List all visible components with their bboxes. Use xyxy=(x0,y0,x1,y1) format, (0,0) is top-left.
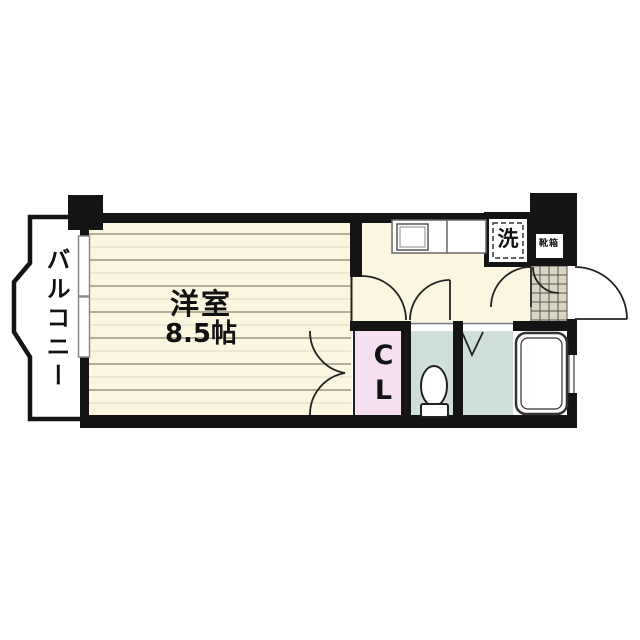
wall-above-bath xyxy=(513,321,567,331)
wall-right-upper xyxy=(567,223,577,266)
shoebox-label: 靴箱 xyxy=(535,240,563,249)
entrance-door-arc xyxy=(575,267,627,319)
wall-right-lower xyxy=(567,393,577,415)
floor-plan-page: バルコニー 洋室 8.5帖 CL 洗 靴箱 xyxy=(0,0,640,640)
floor-plan-drawing xyxy=(0,0,640,640)
room-name-label: 洋室 xyxy=(101,289,301,319)
entry-tiles xyxy=(531,266,567,322)
toilet xyxy=(421,366,448,417)
bathtub xyxy=(516,333,567,414)
wall-right-middle xyxy=(567,319,577,355)
wall-room-hall xyxy=(350,213,362,277)
room-size-label: 8.5帖 xyxy=(101,321,301,348)
kitchen-counter xyxy=(392,220,486,253)
balcony-label: バルコニー xyxy=(38,247,68,417)
wall-toilet-bath xyxy=(453,321,463,415)
washer-label: 洗 xyxy=(489,228,527,250)
wall-closet-toilet xyxy=(401,321,411,415)
closet-label: CL xyxy=(361,340,397,410)
balcony-window xyxy=(79,236,90,357)
bathroom-floor xyxy=(463,331,513,415)
wall-bottom xyxy=(80,415,577,428)
